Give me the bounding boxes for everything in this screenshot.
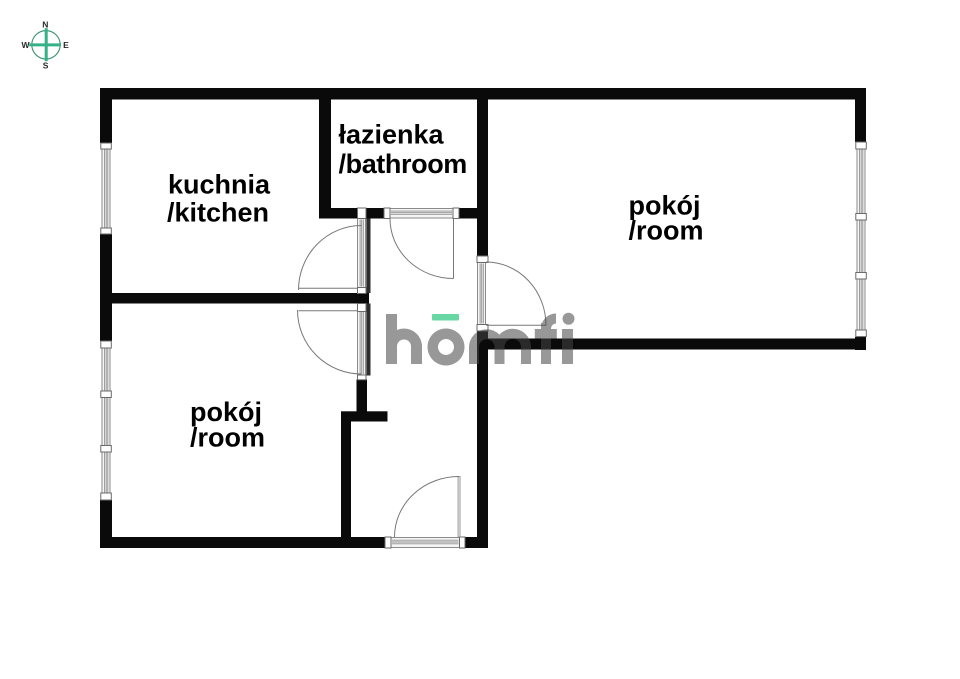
svg-text:/bathroom: /bathroom — [339, 149, 467, 179]
svg-text:S: S — [43, 61, 49, 71]
svg-text:E: E — [63, 40, 69, 50]
svg-text:kuchnia: kuchnia — [168, 170, 271, 200]
svg-text:/kitchen: /kitchen — [167, 197, 269, 227]
svg-text:/room: /room — [629, 216, 704, 246]
svg-text:łazienka: łazienka — [339, 120, 445, 150]
svg-text:W: W — [21, 40, 30, 50]
svg-text:/room: /room — [190, 422, 265, 452]
svg-text:N: N — [42, 19, 48, 29]
